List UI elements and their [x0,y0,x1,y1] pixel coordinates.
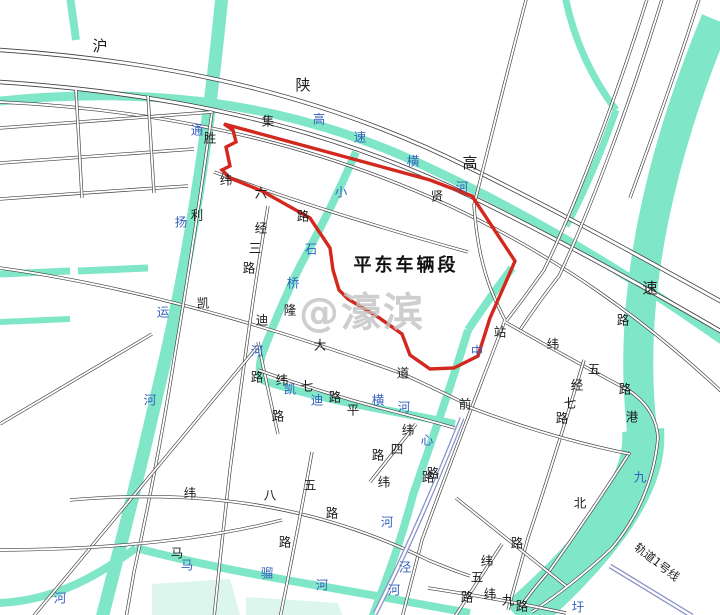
map-label-char-long: 隆 [284,303,297,318]
map-label-river-jing: 河 [388,583,401,598]
map-label-road-jing7: 七 [564,396,577,411]
map-label-river-xiaoshiqiao: 桥 [287,276,300,291]
map-label-road-jing7: 路 [556,411,569,426]
map-label-road-wei8: 八 [264,488,277,503]
depot-site-label: 平东车辆段 [354,251,459,277]
map-label-char-bei: 北 [574,496,587,511]
map-label-road-wei8: 路 [326,506,339,521]
map-label-road-lu-pair: 路 [251,370,264,385]
map-label-road-kaidi-avenue: 道 [397,366,410,381]
map-label-road-jing7: 经 [571,378,584,393]
map-label-road-wei8: 纬 [184,486,197,501]
river-strip-b [78,268,148,271]
map-label-river-tongyang-canal: 通 [191,123,204,138]
map-label-road-wei4: 四 [391,442,404,457]
map-label-river-jiuyu-port: 圩 [572,600,585,615]
map-label-river-jiuyu-port: 九 [634,470,647,485]
map-label-road-shengli: 利 [191,208,204,223]
map-label-road-jixian: 贤 [431,189,444,204]
map-label-river-jing: 泾 [399,560,412,575]
map-label-river-tongyang-canal: 运 [157,305,170,320]
map-label-river-gaosu-henghe: 横 [407,154,420,169]
map-label-river-kaidi-henghe: 河 [398,400,411,415]
map-label-river-gaosu-henghe: 速 [354,130,367,145]
map-label-road-kaidi-avenue: 凯 [197,296,210,311]
map-label-road-shengli: 胜 [204,131,217,146]
map-label-river-kaidi-henghe: 横 [372,393,385,408]
map-label-road-wei5: 纬 [547,337,560,352]
map-label-expressway-hushaan: 陕 [295,76,310,94]
map-label-river-xiaoshiqiao: 小 [335,185,348,200]
map-label-road-wei4: 纬 [402,423,415,438]
map-label-road-wei6: 纬 [220,173,233,188]
map-label-road-wei7: 纬 [276,373,289,388]
map-label-road-wei9: 九 [502,593,515,608]
map-label-road-jing3: 路 [243,261,256,276]
map-label-char-gang: 港 [626,410,639,425]
map-label-river-zhongxin: 心 [421,433,434,448]
map-label-road-wei5: 五 [588,362,601,377]
map-label-river-xiaoshiqiao: 河 [251,344,264,359]
map-label-road-wei5: 路 [619,382,632,397]
map-label-road-zhanqian: 路 [427,466,440,481]
map-label-char-wu: 五 [304,478,317,493]
map-label-expressway-hushaan: 沪 [92,37,107,55]
map-label-char-ma: 马 [171,546,184,561]
map-label-road-jixian: 路 [617,313,630,328]
map-label-road-jixian: 集 [262,114,275,129]
map-label-river-west-he: 河 [54,591,67,606]
map-label-road-wei5-s: 路 [461,590,474,605]
map-label-char-ping: 平 [347,403,360,418]
map-label-river-zhongxin: 河 [381,515,394,530]
map-label-road-zhanqian: 站 [494,325,507,340]
watermark-haobin: @濠滨 [299,280,425,338]
map-screenshot: 通扬运河河高速横河小石桥河凯迪横河中心河泾河马骝河九圩沪陕高速集贤路胜利纬六路经… [0,0,720,615]
map-label-expressway-hushaan: 速 [642,279,657,297]
map-label-river-zhongxin: 中 [471,344,484,359]
map-label-road-lu-pair: 路 [272,409,285,424]
map-label-road-wei9: 纬 [484,587,497,602]
map-label-road-kaidi-avenue: 迪 [256,313,269,328]
map-label-river-kaidi-henghe: 迪 [311,393,324,408]
map-label-expressway-hushaan: 高 [462,154,477,172]
map-label-road-wei8: 路 [279,535,292,550]
river-strip-c [0,319,70,322]
map-label-road-kaidi-avenue: 大 [314,338,327,353]
map-label-road-jing3: 三 [249,241,262,256]
map-label-road-wei-lu: 纬 [378,475,391,490]
map-label-char-lu-se: 路 [511,536,524,551]
map-label-road-wei6: 路 [297,209,310,224]
map-label-river-tongyang-canal: 河 [144,393,157,408]
map-label-river-gaosu-henghe: 河 [456,180,469,195]
map-label-road-wei6: 六 [255,186,268,201]
map-label-road-wei9: 路 [516,599,529,614]
map-label-road-zhanqian: 前 [459,397,472,412]
map-label-river-maliu: 骝 [261,566,274,581]
map-label-road-wei7: 七 [301,379,314,394]
map-label-road-wei5-s: 五 [471,570,484,585]
map-label-river-gaosu-henghe: 高 [313,112,326,127]
map-label-road-wei7: 路 [329,390,342,405]
map-label-road-wei5-s: 纬 [481,554,494,569]
map-label-river-maliu: 河 [316,578,329,593]
map-label-road-jing3: 经 [255,221,268,236]
pond-west [152,579,240,615]
map-label-road-wei4: 路 [372,448,385,463]
map-label-river-xiaoshiqiao: 石 [305,242,318,257]
map-label-river-tongyang-canal: 扬 [175,215,188,230]
